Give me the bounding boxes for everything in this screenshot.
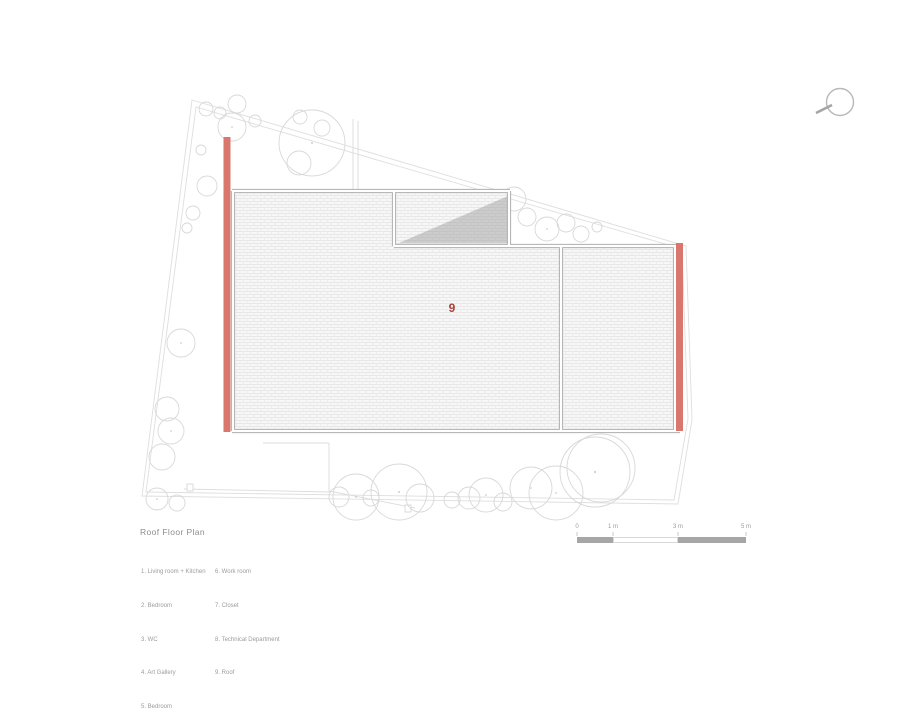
- scale-segment-filled: [577, 537, 613, 543]
- accent-wall-right: [676, 243, 683, 431]
- tree-canopy: [557, 214, 575, 232]
- scale-label-0: 0: [575, 524, 578, 530]
- tree-canopy: [197, 176, 217, 196]
- roof-right-section: [563, 248, 674, 429]
- legend-column-1: 1. Living room + Kitchen 2. Bedroom 3. W…: [141, 545, 206, 724]
- tree-canopy: [186, 206, 200, 220]
- legend-item: 8. Technical Department: [215, 635, 280, 646]
- legend-column-2: 6. Work room 7. Closet 8. Technical Depa…: [215, 545, 280, 691]
- tree-canopy: [406, 484, 434, 512]
- accent-wall-left: [224, 137, 231, 432]
- tree-canopy: [573, 226, 589, 242]
- scale-bar: [577, 532, 746, 543]
- tree-canopy: [592, 222, 602, 232]
- legend-item: 6. Work room: [215, 567, 280, 578]
- scale-label-1m: 1 m: [608, 524, 618, 530]
- tree-canopy: [149, 444, 175, 470]
- legend-item: 4. Art Gallery: [141, 668, 206, 679]
- tree-canopy: [287, 151, 311, 175]
- tree-canopy: [314, 120, 330, 136]
- tree-canopy: [329, 487, 349, 507]
- scale-segment-empty: [614, 538, 678, 543]
- plan-title: Roof Floor Plan: [140, 527, 205, 537]
- legend-item: 2. Bedroom: [141, 601, 206, 612]
- tree-canopy: [155, 397, 179, 421]
- legend-item: 3. WC: [141, 635, 206, 646]
- tree-canopy: [182, 223, 192, 233]
- legend-item: 1. Living room + Kitchen: [141, 567, 206, 578]
- scale-segment-filled: [678, 537, 746, 543]
- setback-marker-lines: [353, 119, 358, 191]
- legend-item: 9. Roof: [215, 668, 280, 679]
- roof-number-label: 9: [449, 301, 456, 315]
- tree-canopy: [228, 95, 246, 113]
- north-indicator-icon: [816, 89, 854, 116]
- legend-item: 5. Bedroom: [141, 702, 206, 713]
- scale-label-3m: 3 m: [673, 524, 683, 530]
- tree-canopy: [567, 434, 635, 502]
- tree-canopy: [169, 495, 185, 511]
- roof-upper-section: [395, 193, 508, 244]
- scale-label-5m: 5 m: [741, 524, 751, 530]
- tree-canopy: [249, 115, 261, 127]
- tree-canopy: [444, 492, 460, 508]
- site-plan-canvas: [0, 0, 920, 666]
- legend-item: 7. Closet: [215, 601, 280, 612]
- tree-canopy: [196, 145, 206, 155]
- tree-canopy: [518, 208, 536, 226]
- fence-post: [187, 484, 193, 491]
